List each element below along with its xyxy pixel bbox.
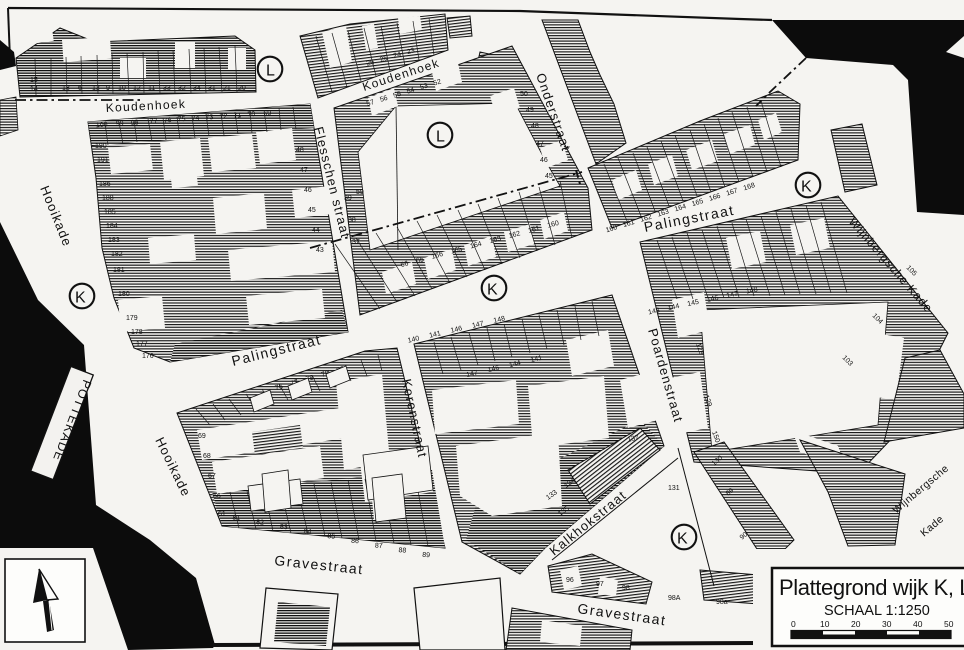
- svg-text:Plattegrond wijk K, L: Plattegrond wijk K, L: [779, 575, 964, 600]
- svg-text:6: 6: [78, 85, 82, 92]
- svg-text:10: 10: [820, 619, 830, 629]
- svg-text:71: 71: [233, 112, 241, 120]
- svg-text:68: 68: [203, 453, 211, 460]
- svg-text:21: 21: [223, 85, 231, 92]
- svg-text:32: 32: [178, 85, 186, 92]
- svg-text:50: 50: [944, 619, 954, 629]
- svg-text:86: 86: [351, 538, 359, 546]
- svg-text:191: 191: [97, 157, 109, 164]
- svg-text:30: 30: [882, 619, 892, 629]
- svg-text:180: 180: [118, 291, 130, 298]
- svg-text:33: 33: [163, 85, 171, 92]
- svg-text:76: 76: [163, 117, 171, 125]
- svg-text:9: 9: [106, 85, 110, 92]
- svg-text:72: 72: [219, 113, 227, 121]
- svg-text:14: 14: [30, 86, 38, 93]
- svg-text:100: 100: [96, 121, 108, 129]
- svg-text:188: 188: [102, 195, 114, 202]
- svg-text:43: 43: [316, 247, 324, 254]
- svg-text:0: 0: [791, 619, 796, 629]
- svg-text:83: 83: [280, 524, 288, 532]
- svg-text:77: 77: [150, 118, 158, 126]
- svg-text:34: 34: [193, 85, 201, 92]
- svg-text:178: 178: [131, 329, 143, 336]
- svg-text:89: 89: [422, 552, 430, 560]
- svg-text:69: 69: [198, 433, 206, 440]
- svg-text:87: 87: [375, 542, 383, 550]
- svg-text:190: 190: [95, 143, 107, 150]
- svg-text:SCHAAL 1:1250: SCHAAL 1:1250: [824, 603, 930, 619]
- svg-text:47: 47: [536, 141, 544, 148]
- svg-text:98a: 98a: [716, 599, 728, 606]
- svg-text:82: 82: [256, 519, 264, 527]
- svg-text:31: 31: [208, 85, 216, 92]
- svg-text:177: 177: [136, 341, 148, 348]
- svg-text:185: 185: [104, 209, 116, 216]
- svg-text:K: K: [677, 531, 688, 548]
- svg-text:186: 186: [99, 181, 111, 188]
- svg-text:45: 45: [308, 207, 316, 214]
- svg-text:15: 15: [30, 77, 38, 84]
- svg-text:K: K: [75, 290, 86, 307]
- svg-text:48: 48: [296, 147, 304, 154]
- svg-text:75: 75: [177, 116, 185, 124]
- svg-text:L: L: [436, 129, 445, 146]
- svg-text:67: 67: [208, 473, 216, 480]
- svg-text:59: 59: [356, 189, 364, 196]
- svg-text:45: 45: [545, 173, 553, 180]
- svg-text:13: 13: [92, 85, 100, 92]
- svg-text:K: K: [801, 179, 812, 196]
- svg-text:20: 20: [238, 85, 246, 92]
- svg-text:20: 20: [851, 619, 861, 629]
- svg-text:98: 98: [622, 585, 630, 592]
- svg-text:40: 40: [913, 619, 923, 629]
- svg-text:49: 49: [526, 107, 534, 114]
- svg-text:98A: 98A: [668, 595, 681, 602]
- svg-text:46: 46: [304, 187, 312, 194]
- svg-text:96: 96: [566, 577, 574, 584]
- svg-text:44: 44: [312, 227, 320, 234]
- svg-text:11: 11: [148, 85, 155, 92]
- svg-text:183: 183: [108, 237, 120, 244]
- svg-text:179: 179: [126, 315, 138, 322]
- svg-text:181: 181: [113, 267, 125, 274]
- svg-text:10: 10: [118, 85, 126, 92]
- svg-text:47: 47: [300, 167, 308, 174]
- svg-text:85: 85: [327, 533, 335, 541]
- svg-text:176: 176: [142, 353, 154, 360]
- svg-text:48: 48: [531, 123, 539, 130]
- svg-text:66: 66: [213, 493, 221, 500]
- svg-text:97: 97: [596, 581, 604, 588]
- svg-text:88: 88: [398, 547, 406, 555]
- svg-text:K: K: [487, 282, 498, 299]
- svg-text:70: 70: [247, 111, 255, 119]
- svg-text:12: 12: [133, 85, 141, 92]
- svg-text:50: 50: [520, 91, 528, 98]
- svg-text:61: 61: [218, 511, 226, 518]
- svg-text:184: 184: [106, 223, 118, 230]
- svg-text:L: L: [266, 63, 275, 80]
- svg-text:46: 46: [540, 157, 548, 164]
- svg-text:182: 182: [111, 251, 123, 258]
- svg-text:18: 18: [62, 85, 70, 92]
- svg-text:131: 131: [668, 485, 680, 492]
